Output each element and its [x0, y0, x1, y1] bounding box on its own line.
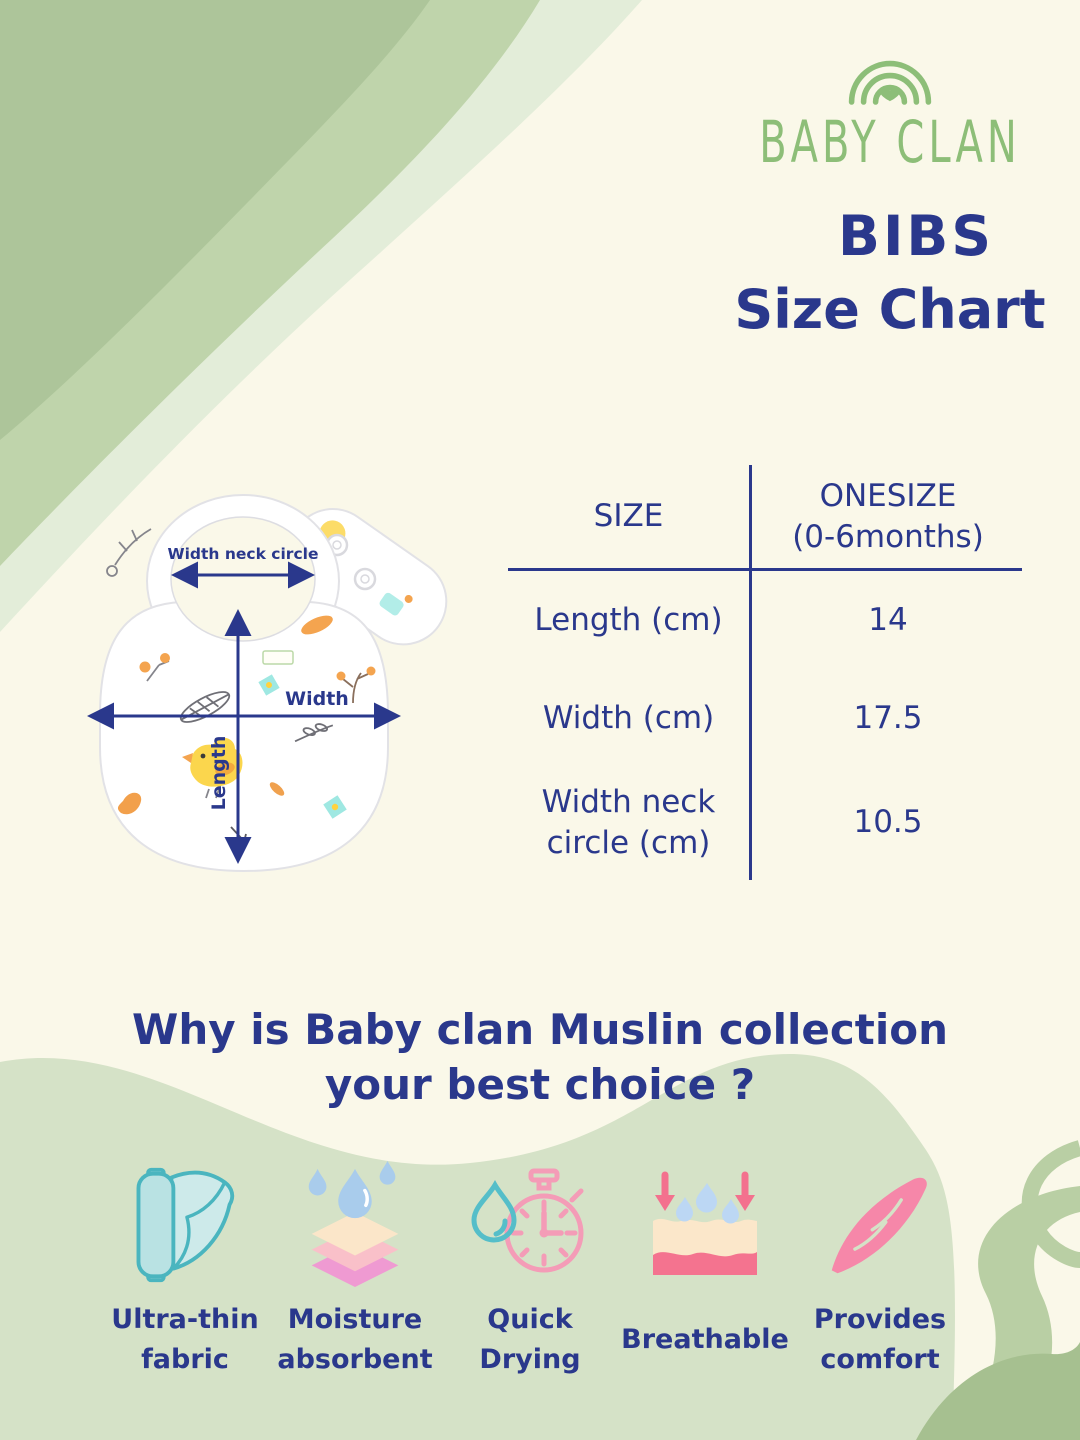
table-row-neck-label: Width neck circle (cm)	[508, 765, 749, 880]
snap-button	[355, 569, 375, 589]
neck-width-label: Width neck circle	[168, 545, 319, 563]
feature-label: Moisture absorbent	[265, 1296, 445, 1384]
bib-dimension-diagram: Width neck circle Width Length	[85, 475, 465, 875]
table-header-size: SIZE	[508, 465, 749, 568]
feature-quick-drying: Quick Drying	[440, 1158, 620, 1384]
table-row-neck-value: 10.5	[752, 765, 1024, 880]
feature-label: Breathable	[615, 1296, 795, 1384]
feature-label: Quick Drying	[440, 1296, 620, 1384]
size-table: SIZE ONESIZE (0-6months) Length (cm) 14 …	[508, 465, 1024, 883]
rainbow-heart-icon	[730, 50, 1050, 108]
feature-label: Ultra-thin fabric	[95, 1296, 275, 1384]
table-row-length-value: 14	[752, 568, 1024, 672]
moisture-layers-icon	[265, 1158, 445, 1292]
question-line-2: your best choice ?	[0, 1057, 1080, 1112]
bib-neck-hole	[171, 517, 315, 641]
feature-ultra-thin: Ultra-thin fabric	[95, 1158, 275, 1384]
feature-label: Provides comfort	[790, 1296, 970, 1384]
fabric-roll-icon	[95, 1158, 275, 1292]
width-label: Width	[285, 688, 349, 710]
table-header-onesize: ONESIZE (0-6months)	[752, 465, 1024, 568]
feature-provides-comfort: Provides comfort	[790, 1158, 970, 1384]
table-row-length-label: Length (cm)	[508, 568, 749, 672]
feature-moisture-absorbent: Moisture absorbent	[265, 1158, 445, 1384]
question-heading: Why is Baby clan Muslin collection your …	[0, 1002, 1080, 1113]
table-row-width-label: Width (cm)	[508, 672, 749, 765]
length-label: Length	[208, 736, 230, 811]
breathable-fabric-icon	[615, 1158, 795, 1292]
bib-body	[100, 602, 388, 871]
feature-breathable: Breathable	[615, 1158, 795, 1384]
page-title: Size Chart	[730, 278, 1050, 341]
feather-icon	[790, 1158, 970, 1292]
table-row-width-value: 17.5	[752, 672, 1024, 765]
brand-name: BABY CLAN	[759, 110, 1021, 177]
product-title: BIBS	[730, 204, 1050, 268]
stopwatch-drop-icon	[440, 1158, 620, 1292]
question-line-1: Why is Baby clan Muslin collection	[0, 1002, 1080, 1057]
brand-logo-block: BABY CLAN BIBS Size Chart	[730, 50, 1050, 341]
